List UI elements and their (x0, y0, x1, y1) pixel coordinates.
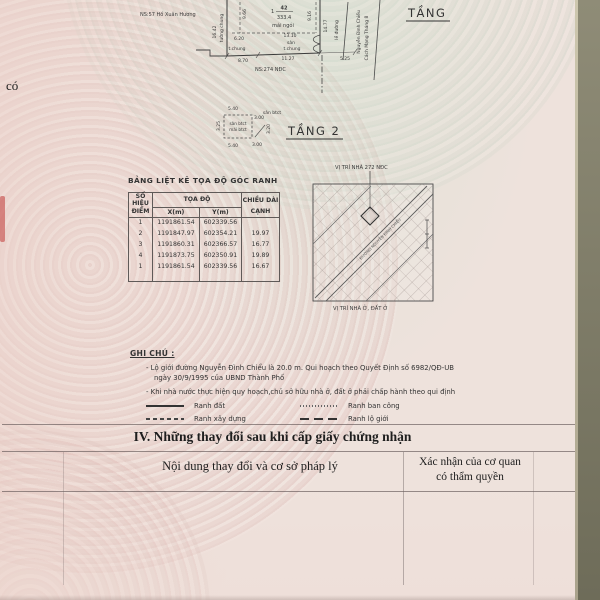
red-edge-mark (0, 196, 5, 242)
yard-btct-label: sân btct (230, 121, 247, 126)
table-row: 31191860.31 602366.5716.77 (129, 239, 280, 250)
floor2-plan: 5.40 5.40 sân btct mái btct 3.25 3.00 sâ… (195, 95, 355, 160)
legend-row-2: Ranh xây dựng Ranh lộ giới (146, 415, 475, 423)
section4-col-left-header: Nội dung thay đổi và cơ sở pháp lý (95, 459, 405, 474)
floor2-title: TẦNG 2 (287, 122, 340, 138)
legend-row-1: Ranh đất Ranh ban công (146, 402, 475, 410)
table-border-left (63, 452, 64, 585)
certificate-photo: có NS:57 Hồ Xuân Hương 1 42 333.4 mái ng… (0, 0, 600, 600)
legend-label-ranh-lo-gioi: Ranh lộ giới (348, 415, 389, 423)
stair-symbol (313, 35, 320, 53)
floor1-title: TẦNG 1 (407, 4, 450, 20)
dim-bottom-left: 8.70 (238, 58, 248, 64)
notes-section: GHI CHÚ : - Lộ giới đường Nguyễn Đình Ch… (130, 341, 475, 423)
dim-setback: 5.25 (340, 56, 350, 62)
coordinate-table-title: BẢNG LIỆT KÊ TỌA ĐỘ GÓC RANH (128, 176, 286, 185)
map-top-label: VỊ TRÍ NHÀ 272 NĐC (335, 164, 388, 171)
notes-title: GHI CHÚ : (130, 349, 175, 358)
shared-wall-left: tường chung (218, 14, 225, 43)
shared-wall-1: t.chung (228, 46, 245, 52)
header-point-1: SỐ HIỆU (129, 193, 153, 208)
header-coord: TỌA ĐỘ (153, 193, 242, 208)
rule-below-headers (2, 491, 576, 492)
lot-prefix: 1 (271, 9, 274, 15)
legend-label-ranh-ban-cong: Ranh ban công (348, 402, 400, 410)
header-length-1: CHIỀU DÀI (242, 193, 280, 208)
neighbor-outline (196, 50, 227, 56)
table-divider (403, 452, 404, 585)
rule-below-title (2, 451, 576, 452)
roof-label: mái ngói (272, 22, 294, 29)
legend-line-longdash (300, 418, 338, 419)
legend-label-ranh-dat: Ranh đất (194, 402, 272, 410)
section4-title: IV. Những thay đổi sau khi cấp giấy chứn… (0, 429, 545, 445)
table-row: 11191861.54 602339.5616.67 (129, 261, 280, 272)
table-row: 21191847.97 602354.2119.97 (129, 228, 280, 239)
front-boundary-line (227, 53, 320, 56)
dim-right-inner: 9.16 (307, 11, 313, 21)
legend-line-dotted (300, 405, 338, 406)
roof-btct-label: mái btct (229, 127, 247, 132)
lot-area: 333.4 (277, 15, 291, 21)
callout-label: sân btct (263, 109, 281, 116)
sidewalk-label: lề đường (332, 20, 340, 40)
site-map: VỊ TRÍ NHÀ 272 NĐC ĐƯỜNG NGUYỄN ĐÌNH CHI… (305, 160, 440, 315)
photo-background-edge (578, 0, 600, 600)
yard-label: sân (287, 39, 295, 46)
map-bottom-label: VỊ TRÍ NHÀ Ở, ĐẤT Ở (333, 304, 388, 312)
dim-left: 16.42 (212, 25, 218, 38)
legend-line-solid (146, 405, 184, 406)
header-point-2: ĐIỂM (129, 207, 153, 217)
coordinate-table: SỐ HIỆU TỌA ĐỘ CHIỀU DÀI ĐIỂM X(m) Y(m) … (128, 192, 280, 282)
ns-bottom-label: NS:274 NĐC (255, 67, 286, 73)
table-row: 41191873.75 602350.9119.89 (129, 250, 280, 261)
ns-left-label: NS:57 Hồ Xuân Hương (140, 10, 196, 18)
dim-left: 3.25 (216, 121, 222, 131)
dim-right-vert: 3.20 (266, 124, 272, 134)
street-line-1 (343, 2, 348, 60)
header-x: X(m) (153, 207, 200, 217)
header-length-2: CẠNH (242, 207, 280, 217)
table-border-right (533, 452, 534, 585)
coordinate-table-section: BẢNG LIỆT KÊ TỌA ĐỘ GÓC RANH SỐ HIỆU TỌA… (128, 176, 286, 282)
callout-line (255, 125, 265, 137)
table-row: 11191861.54 602339.56 (129, 217, 280, 228)
map-parcel-grid: ĐƯỜNG NGUYỄN ĐÌNH CHIỂU (313, 184, 433, 305)
note-line-2: - Khi nhà nước thực hiện quy hoạch,chủ s… (146, 388, 475, 397)
header-y: Y(m) (199, 207, 241, 217)
note-line-1: - Lộ giới đường Nguyễn Đình Chiểu là 20.… (146, 364, 475, 373)
dim-top: 5.40 (228, 106, 238, 112)
dim-top-left: 6.20 (234, 36, 244, 42)
street2-label: Cách Mạng Tháng 8 (363, 15, 370, 60)
street-line-2 (374, 0, 380, 80)
shared-wall-2: t.chung (283, 46, 300, 52)
setback-line (320, 52, 355, 53)
dim-left-inner: 9.66 (242, 9, 248, 19)
note-line-1b: ngày 30/9/1995 của UBND Thành Phố (154, 374, 475, 383)
dim-bottom-right: 11.27 (282, 56, 295, 62)
legend-line-dashed (146, 418, 184, 419)
dim-right: 14.77 (323, 19, 329, 32)
table-filler-row (129, 272, 280, 281)
partial-text: có (6, 78, 18, 94)
legend-label-ranh-xay-dung: Ranh xây dựng (194, 415, 272, 423)
dim-top-right: 13.10 (284, 33, 297, 39)
section4-col-right-header: Xác nhận của cơ quan có thẩm quyền (404, 455, 536, 485)
dim-bottom: 5.40 (228, 143, 238, 149)
lot-number: 42 (281, 6, 288, 12)
rule-above-title (2, 424, 576, 425)
street1-label: Nguyễn Đình Chiểu (355, 10, 362, 54)
floor1-plan: NS:57 Hồ Xuân Hương 1 42 333.4 mái ngói … (130, 0, 450, 95)
paper-bottom-shadow (0, 595, 578, 600)
dim-right-bottom: 3.00 (252, 142, 262, 148)
